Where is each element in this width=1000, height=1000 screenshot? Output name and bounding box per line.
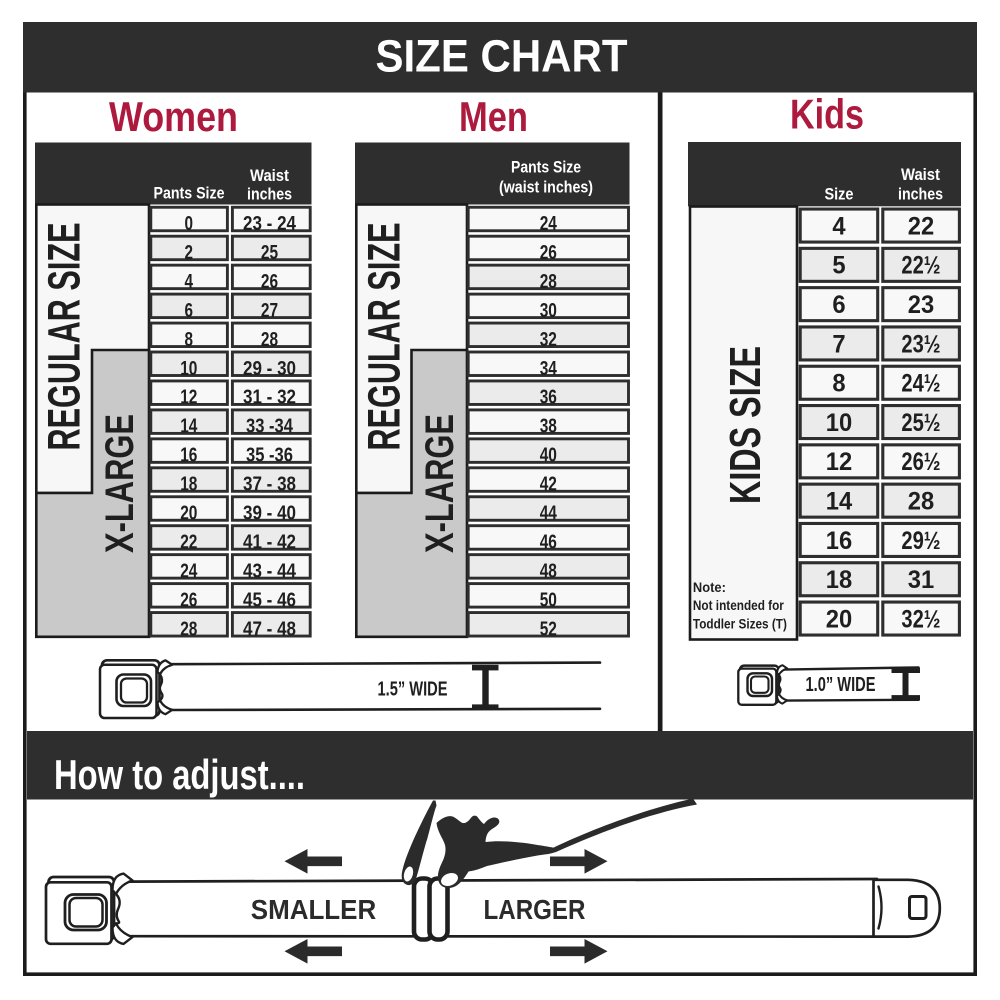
svg-text:SIZE CHART: SIZE CHART [376, 31, 628, 82]
svg-text:29 - 30: 29 - 30 [243, 358, 296, 380]
svg-text:20: 20 [180, 503, 197, 525]
svg-text:28: 28 [180, 618, 197, 640]
svg-text:27: 27 [261, 300, 278, 322]
svg-text:33 -34: 33 -34 [246, 416, 294, 438]
svg-text:23: 23 [908, 291, 934, 319]
svg-text:29½: 29½ [901, 527, 940, 555]
svg-text:inches: inches [247, 186, 292, 204]
svg-text:26: 26 [540, 242, 557, 264]
svg-text:42: 42 [540, 474, 557, 496]
svg-text:22: 22 [180, 531, 197, 553]
svg-text:22½: 22½ [901, 252, 940, 280]
svg-text:Note:: Note: [693, 580, 726, 595]
svg-text:22: 22 [908, 212, 934, 240]
svg-text:KIDS SIZE: KIDS SIZE [721, 346, 770, 504]
svg-text:REGULAR SIZE: REGULAR SIZE [359, 223, 410, 451]
svg-text:40: 40 [540, 445, 557, 467]
svg-text:X-LARGE: X-LARGE [98, 414, 142, 553]
svg-text:(waist inches): (waist inches) [499, 179, 593, 197]
svg-text:47 - 48: 47 - 48 [243, 618, 296, 640]
svg-text:25½: 25½ [901, 409, 940, 437]
svg-text:25: 25 [261, 242, 278, 264]
svg-text:43 - 44: 43 - 44 [243, 560, 297, 582]
svg-text:14: 14 [180, 416, 198, 438]
svg-text:Waist: Waist [901, 166, 940, 184]
svg-text:37 - 38: 37 - 38 [243, 474, 296, 496]
svg-text:16: 16 [826, 527, 852, 555]
svg-text:Men: Men [459, 93, 528, 140]
svg-text:34: 34 [540, 358, 558, 380]
svg-text:5: 5 [832, 252, 845, 280]
svg-text:6: 6 [832, 291, 845, 319]
svg-text:SMALLER: SMALLER [251, 894, 377, 925]
svg-text:44: 44 [540, 503, 558, 525]
svg-text:8: 8 [185, 329, 194, 351]
svg-text:4: 4 [185, 271, 194, 293]
svg-text:28: 28 [540, 271, 557, 293]
svg-text:45 - 46: 45 - 46 [243, 589, 296, 611]
svg-text:Not intended for: Not intended for [693, 598, 785, 613]
svg-text:26: 26 [180, 589, 197, 611]
svg-text:Pants Size: Pants Size [511, 159, 581, 177]
svg-text:36: 36 [540, 387, 557, 409]
svg-text:28: 28 [908, 487, 934, 515]
svg-text:20: 20 [826, 605, 852, 633]
svg-text:18: 18 [826, 566, 852, 594]
svg-text:8: 8 [832, 370, 845, 398]
svg-text:2: 2 [185, 242, 194, 264]
svg-text:Kids: Kids [790, 91, 864, 138]
svg-text:35 -36: 35 -36 [246, 445, 293, 467]
svg-text:Women: Women [109, 93, 238, 140]
svg-text:32: 32 [540, 329, 557, 351]
svg-text:Toddler Sizes (T): Toddler Sizes (T) [693, 617, 787, 632]
svg-text:52: 52 [540, 618, 557, 640]
svg-text:24: 24 [540, 213, 558, 235]
svg-text:16: 16 [180, 445, 197, 467]
svg-text:1.5” WIDE: 1.5” WIDE [378, 677, 448, 700]
svg-text:26½: 26½ [901, 448, 940, 476]
svg-text:30: 30 [540, 300, 557, 322]
svg-text:X-LARGE: X-LARGE [418, 414, 462, 553]
svg-text:How to adjust....: How to adjust.... [54, 751, 305, 798]
svg-text:7: 7 [832, 330, 845, 358]
svg-text:26: 26 [261, 271, 278, 293]
svg-text:48: 48 [540, 560, 557, 582]
svg-text:1.0” WIDE: 1.0” WIDE [806, 674, 876, 696]
svg-text:REGULAR SIZE: REGULAR SIZE [39, 223, 90, 451]
svg-text:38: 38 [540, 416, 557, 438]
svg-text:10: 10 [180, 358, 197, 380]
svg-text:31: 31 [908, 566, 934, 594]
svg-text:6: 6 [185, 300, 194, 322]
svg-text:23 - 24: 23 - 24 [243, 213, 297, 235]
svg-text:inches: inches [898, 186, 943, 204]
svg-text:50: 50 [540, 589, 557, 611]
svg-text:18: 18 [180, 474, 197, 496]
svg-text:24: 24 [180, 560, 198, 582]
svg-text:10: 10 [826, 409, 852, 437]
svg-text:24½: 24½ [901, 370, 940, 398]
svg-text:LARGER: LARGER [484, 894, 586, 925]
svg-text:31 - 32: 31 - 32 [243, 387, 296, 409]
svg-text:12: 12 [180, 387, 197, 409]
svg-text:23½: 23½ [901, 330, 940, 358]
svg-text:4: 4 [832, 212, 845, 240]
svg-text:32½: 32½ [901, 605, 940, 633]
svg-text:0: 0 [185, 213, 194, 235]
svg-text:Size: Size [825, 186, 854, 204]
svg-text:28: 28 [261, 329, 278, 351]
svg-text:39 - 40: 39 - 40 [243, 503, 296, 525]
svg-text:14: 14 [826, 487, 852, 515]
svg-text:41 - 42: 41 - 42 [243, 531, 296, 553]
svg-text:Waist: Waist [250, 167, 289, 185]
svg-text:Pants Size: Pants Size [154, 185, 225, 203]
svg-text:12: 12 [826, 448, 852, 476]
svg-text:46: 46 [540, 531, 557, 553]
